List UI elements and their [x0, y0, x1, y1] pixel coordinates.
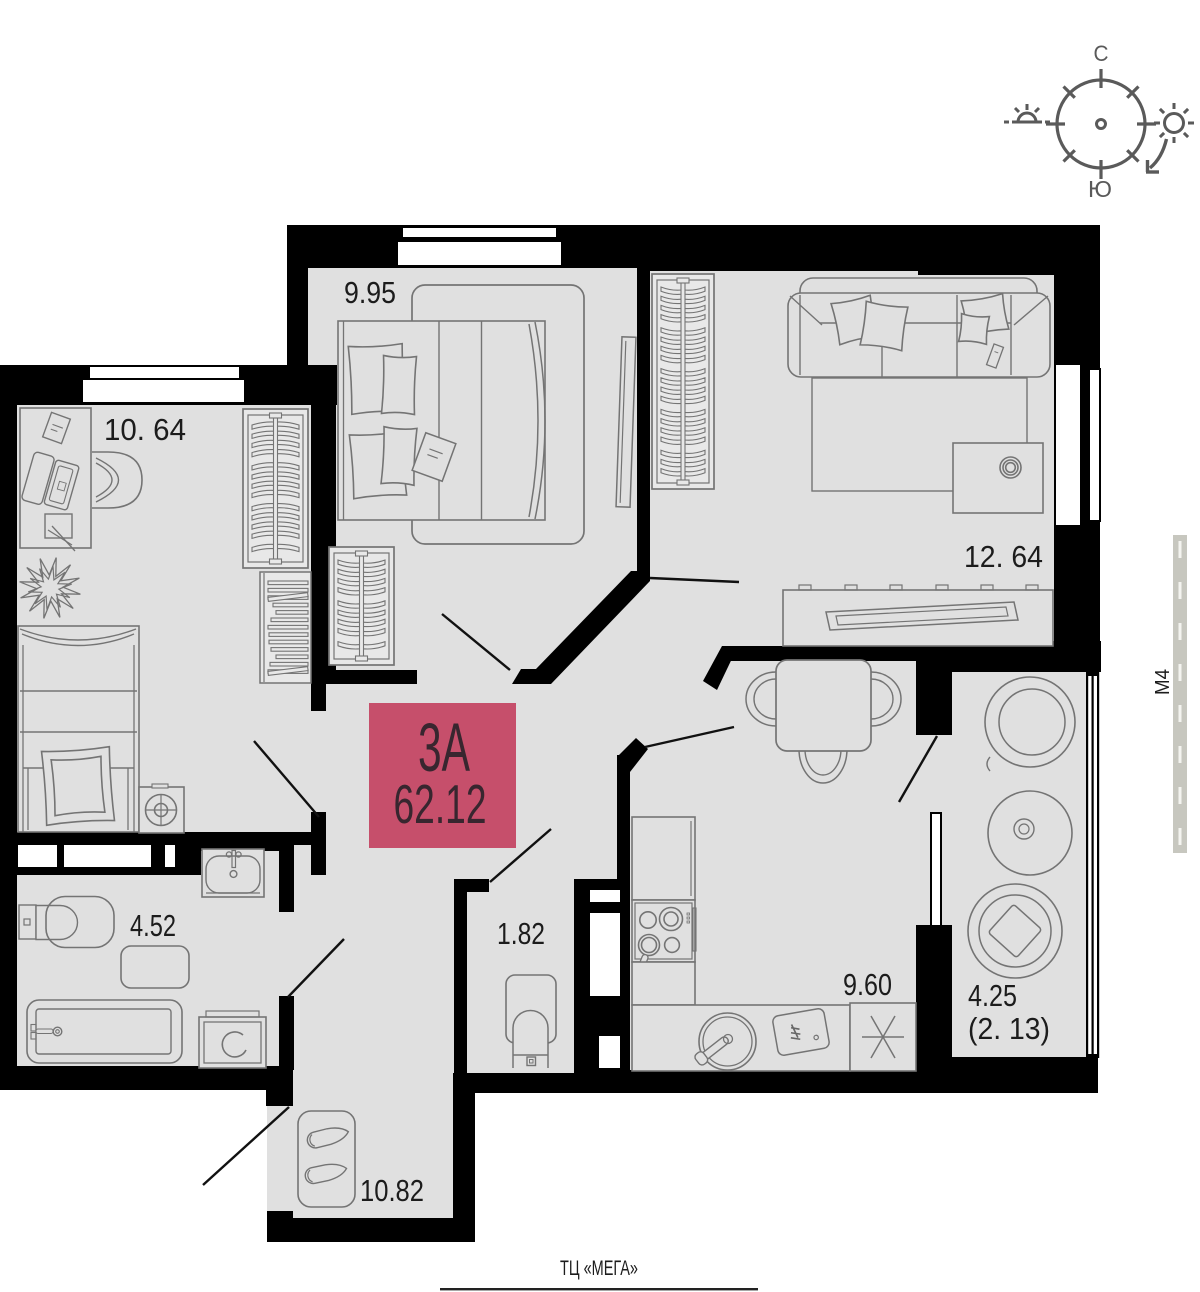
svg-text:9.60: 9.60	[843, 967, 892, 1002]
svg-text:10. 64: 10. 64	[104, 412, 186, 447]
svg-text:4.52: 4.52	[130, 908, 176, 943]
svg-text:4.25: 4.25	[968, 978, 1017, 1013]
svg-text:Ю: Ю	[1088, 176, 1112, 202]
svg-text:М4: М4	[1152, 669, 1174, 695]
svg-text:С: С	[1094, 41, 1109, 66]
svg-text:(2. 13): (2. 13)	[968, 1011, 1050, 1046]
svg-text:62.12: 62.12	[394, 773, 487, 835]
svg-text:1.82: 1.82	[497, 916, 545, 951]
svg-text:ТЦ «МЕГА»: ТЦ «МЕГА»	[560, 1256, 638, 1280]
svg-text:9.95: 9.95	[344, 275, 396, 310]
svg-text:12. 64: 12. 64	[964, 539, 1043, 574]
svg-text:10.82: 10.82	[360, 1173, 424, 1208]
